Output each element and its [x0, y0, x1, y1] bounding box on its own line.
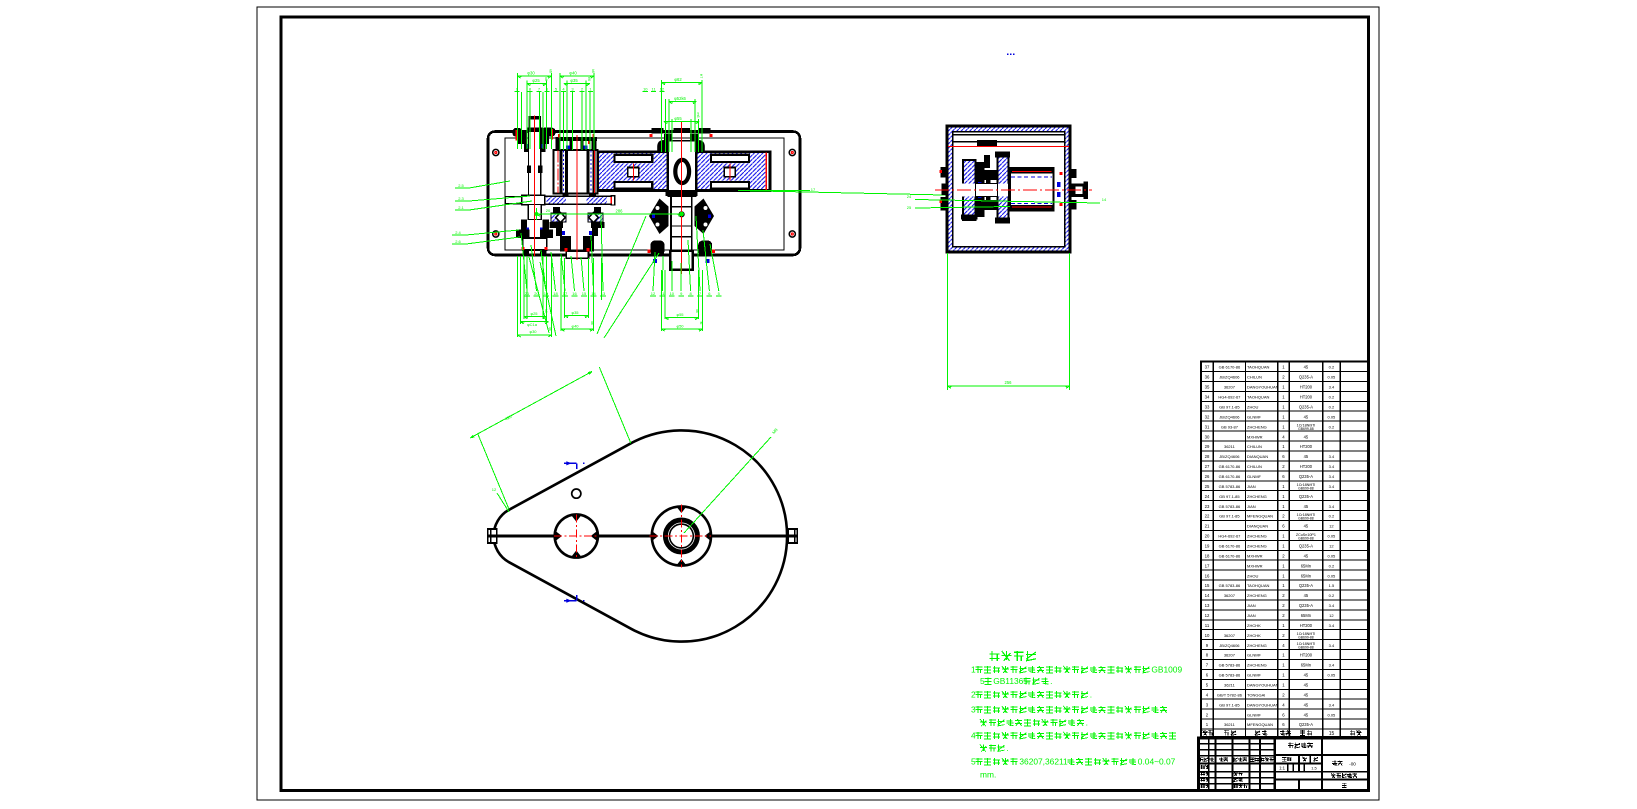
- svg-text:k6: k6: [548, 327, 552, 331]
- svg-text:3.4: 3.4: [1329, 474, 1335, 479]
- svg-text:27: 27: [1205, 464, 1210, 469]
- svg-text:45: 45: [1304, 683, 1309, 688]
- svg-text:JB/ZQ4606: JB/ZQ4606: [1219, 643, 1240, 648]
- svg-text:36211: 36211: [1224, 722, 1236, 727]
- svg-text:2: 2: [971, 689, 976, 699]
- svg-text:JB/ZQ4606: JB/ZQ4606: [1219, 414, 1240, 419]
- svg-text:3.4: 3.4: [1329, 464, 1335, 469]
- svg-text:36207,36211: 36207,36211: [1019, 756, 1068, 766]
- svg-text:JIAN: JIAN: [1247, 603, 1256, 608]
- svg-text:65Mn: 65Mn: [1301, 663, 1312, 668]
- svg-text:32: 32: [1205, 414, 1210, 419]
- svg-text:MFENGQUAN: MFENGQUAN: [1247, 722, 1273, 727]
- svg-text:HT200: HT200: [1300, 623, 1313, 628]
- svg-text:.: .: [1090, 689, 1092, 699]
- svg-text:31: 31: [1205, 424, 1210, 429]
- svg-text:ZHCHENG: ZHCHENG: [1247, 663, 1267, 668]
- svg-text:Q235-A: Q235-A: [1299, 544, 1313, 549]
- svg-text:HG4-692-67: HG4-692-67: [1218, 395, 1241, 400]
- svg-text:ZHCHENG: ZHCHENG: [1247, 534, 1267, 539]
- svg-text:35: 35: [1205, 385, 1210, 390]
- svg-text:33: 33: [1205, 405, 1210, 410]
- svg-text:3.4: 3.4: [1329, 603, 1335, 608]
- svg-text:36: 36: [1205, 375, 1210, 380]
- svg-text:0.2: 0.2: [1329, 395, 1335, 400]
- svg-text:GLNMF: GLNMF: [1247, 673, 1262, 678]
- svg-text:TONGGAI: TONGGAI: [1247, 692, 1265, 697]
- svg-text:φ55: φ55: [676, 312, 684, 317]
- svg-text:65Mn: 65Mn: [1301, 613, 1312, 618]
- svg-text:ZHCHENG: ZHCHENG: [1247, 544, 1267, 549]
- svg-text:GB 6170-86: GB 6170-86: [1219, 553, 1241, 558]
- svg-text:36211: 36211: [1224, 444, 1236, 449]
- svg-text:45: 45: [1304, 692, 1309, 697]
- svg-text:φ40: φ40: [571, 324, 579, 329]
- svg-text:TAOHQUAN: TAOHQUAN: [1247, 365, 1269, 370]
- svg-text:16: 16: [1205, 573, 1210, 578]
- svg-text:φ30: φ30: [529, 329, 537, 334]
- svg-text:n6: n6: [587, 77, 591, 81]
- svg-text:15: 15: [1329, 731, 1335, 737]
- svg-text:GLNMF: GLNMF: [1247, 474, 1262, 479]
- svg-text:GLNMF: GLNMF: [1247, 414, 1262, 419]
- svg-text:GB699-88: GB699-88: [1298, 646, 1314, 650]
- svg-text:18: 18: [553, 291, 558, 296]
- svg-text:29: 29: [1205, 444, 1210, 449]
- svg-text:GB 97.1-85: GB 97.1-85: [1219, 702, 1240, 707]
- svg-text:MXHWR: MXHWR: [1247, 563, 1263, 568]
- svg-text:0.2: 0.2: [1329, 563, 1335, 568]
- svg-text:13: 13: [1205, 603, 1210, 608]
- svg-text:.: .: [1086, 717, 1088, 727]
- svg-text:GB699-88: GB699-88: [1298, 636, 1314, 640]
- svg-text:CHILUN: CHILUN: [1247, 444, 1262, 449]
- svg-text:2.6: 2.6: [455, 239, 461, 244]
- svg-text:36207: 36207: [1224, 593, 1236, 598]
- svg-text:ZHOU: ZHOU: [1247, 573, 1258, 578]
- svg-text:24: 24: [907, 194, 912, 199]
- svg-text:1:1: 1:1: [1279, 766, 1285, 771]
- svg-text:GB 97.1-85: GB 97.1-85: [1219, 405, 1240, 410]
- svg-text:GB 5783-86: GB 5783-86: [1219, 484, 1241, 489]
- svg-text:10: 10: [1205, 633, 1210, 638]
- svg-text:65Mn: 65Mn: [1301, 573, 1312, 578]
- svg-text:ZHCHENG: ZHCHENG: [1247, 643, 1267, 648]
- svg-text:HT200: HT200: [1300, 395, 1313, 400]
- svg-text:0.2: 0.2: [1329, 405, 1335, 410]
- svg-text:45: 45: [1304, 524, 1309, 529]
- svg-text:JB/ZQ4606: JB/ZQ4606: [1219, 454, 1240, 459]
- svg-text:ZHCHENG: ZHCHENG: [1247, 424, 1267, 429]
- svg-text:-00: -00: [1349, 761, 1356, 766]
- svg-text:45: 45: [1304, 434, 1309, 439]
- svg-text:GB699-88: GB699-88: [1298, 487, 1314, 491]
- svg-text:JB/ZQ4606: JB/ZQ4606: [1219, 375, 1240, 380]
- svg-text:1.5: 1.5: [1311, 766, 1317, 771]
- svg-text:4: 4: [971, 730, 976, 740]
- svg-text:GB 97.1-85: GB 97.1-85: [1219, 494, 1240, 499]
- svg-text:5: 5: [980, 676, 985, 686]
- svg-text:3.4: 3.4: [1329, 484, 1335, 489]
- svg-text:10: 10: [643, 87, 648, 92]
- svg-text:MXHWR: MXHWR: [1247, 553, 1263, 558]
- svg-text:45: 45: [1304, 712, 1309, 717]
- svg-text:45: 45: [1304, 553, 1309, 558]
- svg-text:GB 5783-86: GB 5783-86: [1219, 583, 1241, 588]
- svg-text:φ25: φ25: [530, 311, 538, 316]
- svg-text:HG4-692-67: HG4-692-67: [1218, 534, 1241, 539]
- svg-text:65Mn: 65Mn: [1301, 563, 1312, 568]
- svg-text:MFENGQUAN: MFENGQUAN: [1247, 514, 1273, 519]
- svg-text:TAOHQUAN: TAOHQUAN: [1247, 583, 1269, 588]
- svg-text:JIAN: JIAN: [1247, 484, 1256, 489]
- svg-text:17: 17: [811, 187, 816, 192]
- svg-text:2.3: 2.3: [458, 196, 464, 201]
- svg-text:37: 37: [1205, 365, 1210, 370]
- svg-text:12: 12: [1329, 613, 1334, 618]
- svg-text:GB699-88: GB699-88: [1298, 427, 1314, 431]
- svg-text:DIANQUAN: DIANQUAN: [1247, 454, 1268, 459]
- svg-text:Q235-A: Q235-A: [1299, 405, 1313, 410]
- svg-text:DANGYOUHUAN: DANGYOUHUAN: [1247, 702, 1279, 707]
- svg-text:Q235-A: Q235-A: [1299, 722, 1313, 727]
- svg-text:GB/T 5782-86: GB/T 5782-86: [1217, 692, 1243, 697]
- svg-text:25: 25: [1205, 484, 1210, 489]
- svg-text:12: 12: [1329, 544, 1334, 549]
- svg-text:ZHCHENG: ZHCHENG: [1247, 593, 1267, 598]
- svg-text:m6: m6: [696, 113, 700, 118]
- svg-text:DANGYOUHUAN: DANGYOUHUAN: [1247, 683, 1279, 688]
- svg-text:20: 20: [1205, 534, 1210, 539]
- svg-text:HT200: HT200: [1300, 385, 1313, 390]
- svg-text:18: 18: [1205, 553, 1210, 558]
- svg-text:256: 256: [1005, 380, 1013, 385]
- svg-text:H7: H7: [699, 74, 703, 79]
- svg-text:GB 6170-86: GB 6170-86: [1219, 474, 1241, 479]
- svg-text:GB 97.1-85: GB 97.1-85: [1219, 514, 1240, 519]
- svg-text:0.05: 0.05: [1328, 414, 1337, 419]
- svg-text:3.4: 3.4: [1329, 663, 1335, 668]
- svg-text:45: 45: [1304, 414, 1309, 419]
- svg-text:Q235-A: Q235-A: [1299, 494, 1313, 499]
- svg-text:.: .: [1006, 743, 1008, 753]
- svg-text:0.05: 0.05: [1328, 712, 1337, 717]
- svg-text:0.05: 0.05: [1328, 553, 1337, 558]
- svg-text:.: .: [1050, 676, 1052, 686]
- svg-text:0.2: 0.2: [1329, 593, 1335, 598]
- svg-text:HT200: HT200: [1300, 444, 1313, 449]
- svg-text:12: 12: [1205, 613, 1210, 618]
- svg-text:30: 30: [1205, 434, 1210, 439]
- svg-text:36211: 36211: [1224, 683, 1236, 688]
- svg-text:25: 25: [907, 205, 912, 210]
- svg-text:k6: k6: [544, 309, 548, 313]
- svg-text:21: 21: [1205, 524, 1210, 529]
- svg-text:GB 6170-86: GB 6170-86: [1219, 544, 1241, 549]
- svg-text:Q235-A: Q235-A: [1299, 583, 1313, 588]
- svg-text:3.4: 3.4: [1329, 385, 1335, 390]
- svg-text:GB 5783-86: GB 5783-86: [1219, 663, 1241, 668]
- svg-text:36207: 36207: [1224, 385, 1236, 390]
- svg-text:Q235-A: Q235-A: [1299, 375, 1313, 380]
- svg-text:0.2: 0.2: [1329, 514, 1335, 519]
- svg-text:GB 6170-86: GB 6170-86: [1219, 365, 1241, 370]
- svg-text:16: 16: [572, 291, 577, 296]
- svg-text:45: 45: [1304, 454, 1309, 459]
- svg-text:17: 17: [1205, 563, 1210, 568]
- svg-text:14: 14: [1102, 197, 1107, 202]
- svg-text:28: 28: [1205, 454, 1210, 459]
- svg-text:φ52k6: φ52k6: [674, 96, 686, 101]
- svg-text:k6: k6: [591, 69, 595, 73]
- svg-text:Q235-A: Q235-A: [1299, 474, 1313, 479]
- svg-text:3.4: 3.4: [1329, 454, 1335, 459]
- svg-text:φ35: φ35: [571, 310, 579, 315]
- svg-text:GB 5783-86: GB 5783-86: [1219, 673, 1241, 678]
- svg-text:15: 15: [1205, 583, 1210, 588]
- svg-text:CHILUN: CHILUN: [1247, 375, 1262, 380]
- svg-text:3.4: 3.4: [1329, 623, 1335, 628]
- svg-text:f6: f6: [699, 322, 703, 325]
- svg-text:12: 12: [1329, 524, 1334, 529]
- svg-text:JIAN: JIAN: [1247, 504, 1256, 509]
- svg-text:GB 93-87: GB 93-87: [1221, 424, 1239, 429]
- svg-text:45: 45: [1304, 593, 1309, 598]
- svg-text:GLNMF: GLNMF: [1247, 653, 1262, 658]
- svg-text:DIANQUAN: DIANQUAN: [1247, 524, 1268, 529]
- svg-text:23: 23: [1205, 504, 1210, 509]
- svg-text:26: 26: [1205, 474, 1210, 479]
- svg-text:0.2: 0.2: [1329, 424, 1335, 429]
- svg-text:45: 45: [1304, 673, 1309, 678]
- svg-text:22: 22: [1205, 514, 1210, 519]
- svg-text:HT200: HT200: [1300, 653, 1313, 658]
- svg-text:0.05: 0.05: [1328, 375, 1337, 380]
- svg-text:45: 45: [1304, 504, 1309, 509]
- svg-text:φ35: φ35: [570, 78, 578, 83]
- svg-text:φ62: φ62: [674, 77, 682, 82]
- svg-text:GB699-88: GB699-88: [1298, 517, 1314, 521]
- svg-text:TAOHQUAN: TAOHQUAN: [1247, 395, 1269, 400]
- svg-text:19: 19: [1205, 544, 1210, 549]
- svg-text:φ30: φ30: [527, 71, 535, 76]
- svg-text:45: 45: [1304, 365, 1309, 370]
- svg-text:14: 14: [1205, 593, 1210, 598]
- svg-text:3: 3: [971, 704, 976, 714]
- svg-text:15: 15: [582, 291, 587, 296]
- svg-text:2.5: 2.5: [458, 183, 464, 188]
- svg-text:0.05: 0.05: [1328, 673, 1337, 678]
- svg-text:k6: k6: [590, 321, 594, 325]
- svg-text:HT200: HT200: [1300, 464, 1313, 469]
- svg-text:36207: 36207: [1224, 633, 1236, 638]
- svg-text:5: 5: [971, 756, 976, 766]
- svg-text:GB1009: GB1009: [1151, 664, 1182, 674]
- svg-text:0.05: 0.05: [1328, 534, 1337, 539]
- svg-text:φ50: φ50: [676, 324, 684, 329]
- svg-text:MXHWR: MXHWR: [1247, 434, 1263, 439]
- svg-text:1: 1: [971, 664, 976, 674]
- svg-text:0.2: 0.2: [1329, 365, 1335, 370]
- svg-text:GB11365: GB11365: [993, 676, 1028, 686]
- svg-text:12: 12: [651, 291, 656, 296]
- svg-text:20: 20: [546, 208, 551, 213]
- svg-text:φ55: φ55: [674, 116, 682, 121]
- svg-text:2.1: 2.1: [458, 205, 464, 210]
- svg-text:k6: k6: [695, 309, 699, 313]
- svg-text:17: 17: [563, 291, 568, 296]
- svg-text:45: 45: [1304, 702, 1309, 707]
- svg-text:11: 11: [1205, 623, 1210, 628]
- svg-text:2.4: 2.4: [455, 230, 461, 235]
- svg-text:φ40: φ40: [569, 71, 577, 76]
- svg-text:k6: k6: [549, 69, 553, 73]
- svg-text:GB 6170-86: GB 6170-86: [1219, 464, 1241, 469]
- svg-text:12: 12: [660, 87, 665, 92]
- svg-text:ZHOU: ZHOU: [1247, 405, 1258, 410]
- svg-text:k6: k6: [544, 77, 548, 81]
- svg-text:GLNMF: GLNMF: [1247, 712, 1262, 717]
- svg-text:12: 12: [492, 487, 497, 492]
- svg-text:φ25: φ25: [532, 78, 540, 83]
- svg-text:24: 24: [1205, 494, 1210, 499]
- svg-text:3.4: 3.4: [1329, 643, 1335, 648]
- svg-text:GB 5783-86: GB 5783-86: [1219, 504, 1241, 509]
- svg-text:10: 10: [670, 291, 675, 296]
- svg-text:286: 286: [616, 209, 624, 214]
- svg-text:Q235-A: Q235-A: [1299, 603, 1313, 608]
- svg-text:0.05: 0.05: [1328, 573, 1337, 578]
- svg-text:DANGYOUHUAN: DANGYOUHUAN: [1247, 385, 1279, 390]
- svg-text:JIAN: JIAN: [1247, 613, 1256, 618]
- svg-text:1.5: 1.5: [1329, 583, 1335, 588]
- svg-text:34: 34: [1205, 395, 1210, 400]
- svg-text:φC1a: φC1a: [527, 322, 538, 327]
- svg-text:ZHCHK: ZHCHK: [1247, 633, 1261, 638]
- svg-text:36207: 36207: [1224, 653, 1236, 658]
- svg-text:ZHCHK: ZHCHK: [1247, 623, 1261, 628]
- svg-text:GB699-88: GB699-88: [1298, 536, 1314, 540]
- svg-text:3.4: 3.4: [1329, 504, 1335, 509]
- svg-text:ZHCHENG: ZHCHENG: [1247, 494, 1267, 499]
- svg-text:CHILUN: CHILUN: [1247, 464, 1262, 469]
- svg-text:3.4: 3.4: [1329, 702, 1335, 707]
- svg-text:mm.: mm.: [980, 769, 996, 779]
- svg-text:0.04~0.07: 0.04~0.07: [1138, 756, 1176, 766]
